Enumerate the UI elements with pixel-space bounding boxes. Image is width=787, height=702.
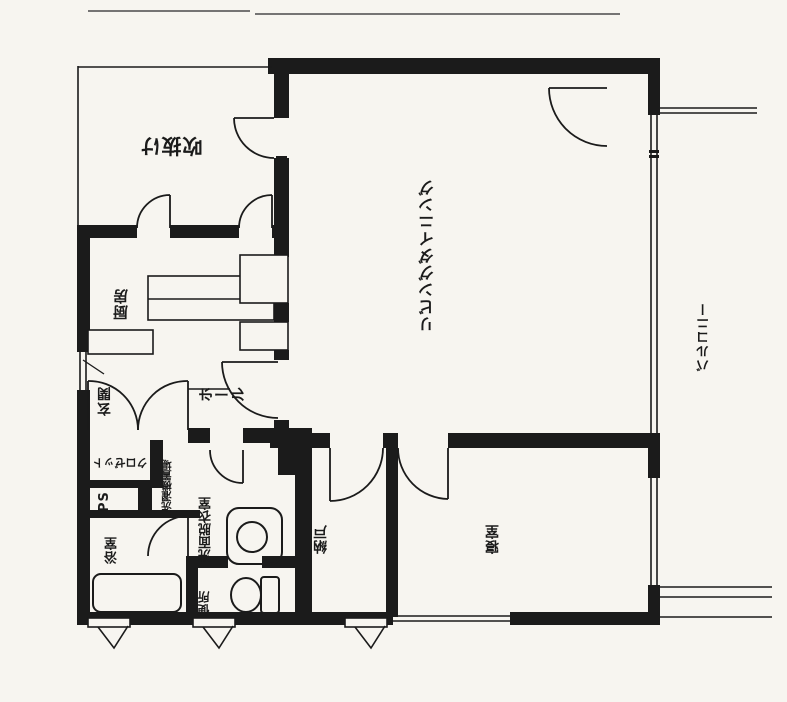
wall	[274, 303, 289, 322]
casement-window	[88, 618, 130, 648]
window-glazing	[651, 115, 657, 433]
toilet-bowl	[231, 578, 261, 612]
casement-window	[193, 618, 235, 648]
wall	[77, 428, 88, 443]
floor-plan-drawing	[0, 0, 787, 702]
pass-through-niche	[240, 255, 288, 303]
window-glazing	[651, 478, 657, 585]
wall	[386, 448, 398, 617]
door-balcony	[549, 88, 607, 146]
room-label-laundry: 洗濯機置場	[162, 446, 188, 512]
wall	[188, 428, 210, 443]
wall	[274, 158, 289, 257]
wall	[268, 58, 660, 74]
room-label-pipe-space: PS	[98, 486, 124, 512]
balcony-rail-top	[660, 108, 757, 113]
casement-window	[345, 618, 387, 648]
room-label-bathroom: 浴室	[106, 518, 132, 564]
room-label-bedroom: 寝室	[486, 508, 514, 554]
room-label-entrance: 玄関	[98, 364, 128, 416]
door-closet-right-leaf	[138, 381, 188, 430]
door-void-living	[234, 118, 274, 158]
room-label-balcony: バルコニー	[698, 282, 724, 372]
door-kitchen-void-left	[137, 195, 170, 228]
toilet-tank	[261, 577, 279, 613]
wall	[648, 585, 660, 625]
wall	[648, 58, 660, 115]
room-label-kitchen: 厨房	[114, 254, 142, 320]
room-label-closet: クロゼット	[88, 452, 152, 468]
wall	[448, 433, 660, 448]
door-bathroom	[148, 516, 188, 556]
door-storage	[330, 448, 383, 501]
washbasin	[237, 522, 267, 552]
entrance-door-lines	[80, 352, 86, 390]
room-label-void: 吹抜け	[126, 120, 216, 156]
wall	[383, 433, 398, 448]
wall	[295, 443, 312, 617]
wall	[274, 58, 289, 118]
wall	[77, 225, 137, 238]
room-label-hall: ホール	[198, 388, 262, 408]
room-label-living-dining: リビングダイニング	[420, 166, 452, 332]
wall	[170, 225, 239, 238]
wall	[510, 612, 660, 625]
pass-through-niche	[240, 322, 288, 350]
basin-counter	[227, 508, 282, 564]
wall	[272, 225, 289, 238]
window-tick	[276, 162, 287, 165]
window-glazing	[393, 616, 510, 621]
door-bedroom	[398, 448, 448, 499]
floor-plan: 吹抜け リビングダイニング バルコニー 厨房 玄関 ホール クロゼット 洗濯機置…	[0, 0, 787, 702]
room-label-washroom: 洗面脱衣室	[200, 452, 226, 562]
bathtub	[93, 574, 181, 612]
shoe-cabinet	[88, 330, 153, 354]
wall	[262, 556, 295, 568]
wall	[274, 350, 289, 360]
balcony-rail-bottom	[660, 587, 772, 617]
room-label-toilet: 便所	[198, 576, 224, 616]
door-kitchen-void-right	[239, 195, 272, 228]
window-tick	[276, 156, 287, 159]
room-label-storage: 納戸	[314, 508, 342, 554]
